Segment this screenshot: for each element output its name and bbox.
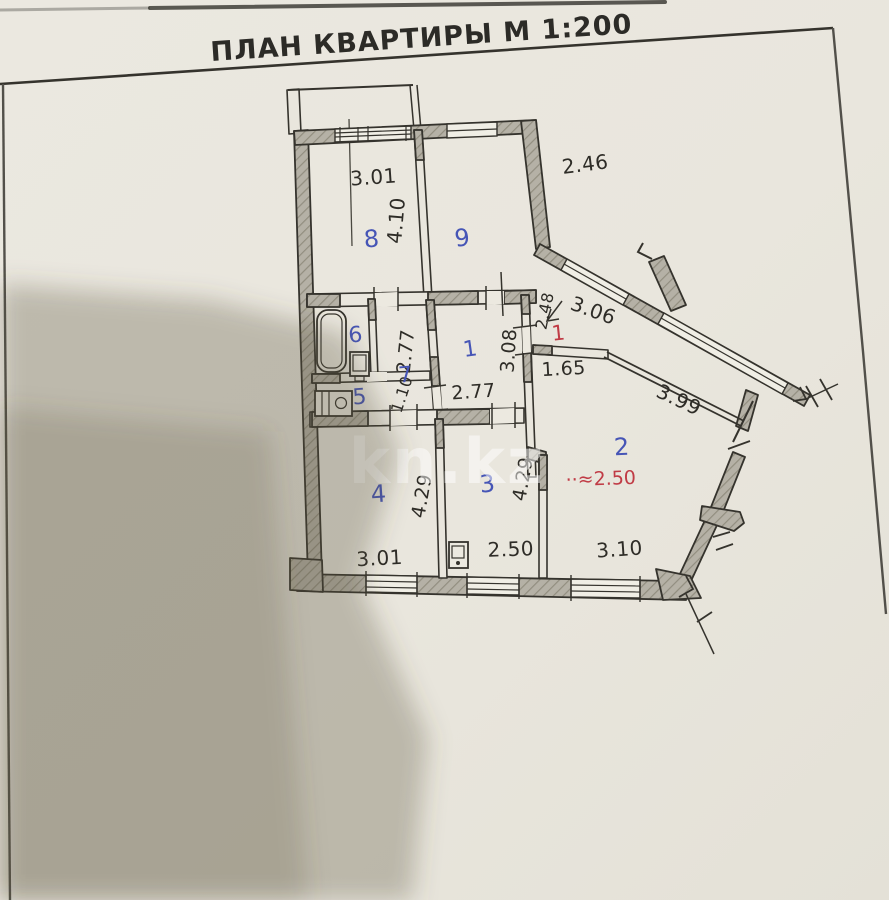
room-number-7: 7 <box>397 362 413 388</box>
plan-canvas: ПЛАН КВАРТИРЫ М 1:200 <box>0 0 889 900</box>
room-number-9: 9 <box>453 223 471 252</box>
dim-room8-width: 3.01 <box>349 163 397 190</box>
red-area-note: ··≈2.50 <box>565 467 636 491</box>
window-symbol <box>571 579 640 598</box>
entrance-mark: 1 <box>550 320 566 345</box>
dim-room3-width: 2.50 <box>487 536 534 562</box>
dim-room2-width: 3.10 <box>595 535 643 562</box>
room-number-2: 2 <box>613 433 630 462</box>
dim-room8-depth: 4.10 <box>382 196 410 244</box>
scanned-floor-plan: ПЛАН КВАРТИРЫ М 1:200 <box>0 0 889 900</box>
window-symbol <box>366 575 417 593</box>
dim-hall-height: 3.08 <box>496 328 521 374</box>
room-number-8: 8 <box>363 225 380 254</box>
dim-hall-width: 2.77 <box>451 379 497 404</box>
dim-entry-width: 1.65 <box>541 357 586 381</box>
window-symbol <box>467 577 519 595</box>
vent-door-icon <box>449 542 468 568</box>
